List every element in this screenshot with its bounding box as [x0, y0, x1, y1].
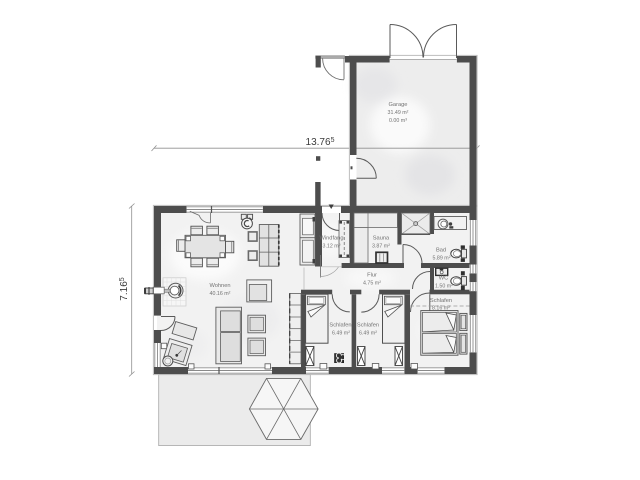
svg-text:Bad: Bad	[436, 248, 446, 254]
svg-text:Wohnen: Wohnen	[209, 283, 230, 289]
svg-text:Schlafen: Schlafen	[357, 323, 379, 329]
svg-text:31.49 m²: 31.49 m²	[388, 110, 409, 116]
svg-text:3.12 m²: 3.12 m²	[323, 244, 341, 250]
svg-text:WC: WC	[439, 276, 448, 282]
svg-text:Garage: Garage	[389, 102, 408, 108]
svg-text:13.765: 13.765	[306, 137, 335, 148]
svg-text:5.89 m²: 5.89 m²	[433, 256, 451, 262]
svg-text:8.16 m²: 8.16 m²	[432, 306, 450, 312]
svg-text:Windfang: Windfang	[319, 236, 343, 242]
svg-text:3.87 m²: 3.87 m²	[372, 244, 390, 250]
svg-text:4.75 m²: 4.75 m²	[363, 281, 381, 287]
svg-text:Schlafen: Schlafen	[430, 298, 452, 304]
svg-text:0.00 m³: 0.00 m³	[389, 118, 407, 124]
svg-text:Sauna: Sauna	[373, 236, 390, 242]
svg-text:6.49 m²: 6.49 m²	[332, 331, 350, 337]
svg-text:1.50 m²: 1.50 m²	[435, 284, 453, 290]
svg-text:Schlafen: Schlafen	[329, 323, 351, 329]
svg-text:Flur: Flur	[367, 273, 377, 279]
svg-text:40.16 m²: 40.16 m²	[210, 291, 231, 297]
svg-text:6.49 m²: 6.49 m²	[359, 331, 377, 337]
